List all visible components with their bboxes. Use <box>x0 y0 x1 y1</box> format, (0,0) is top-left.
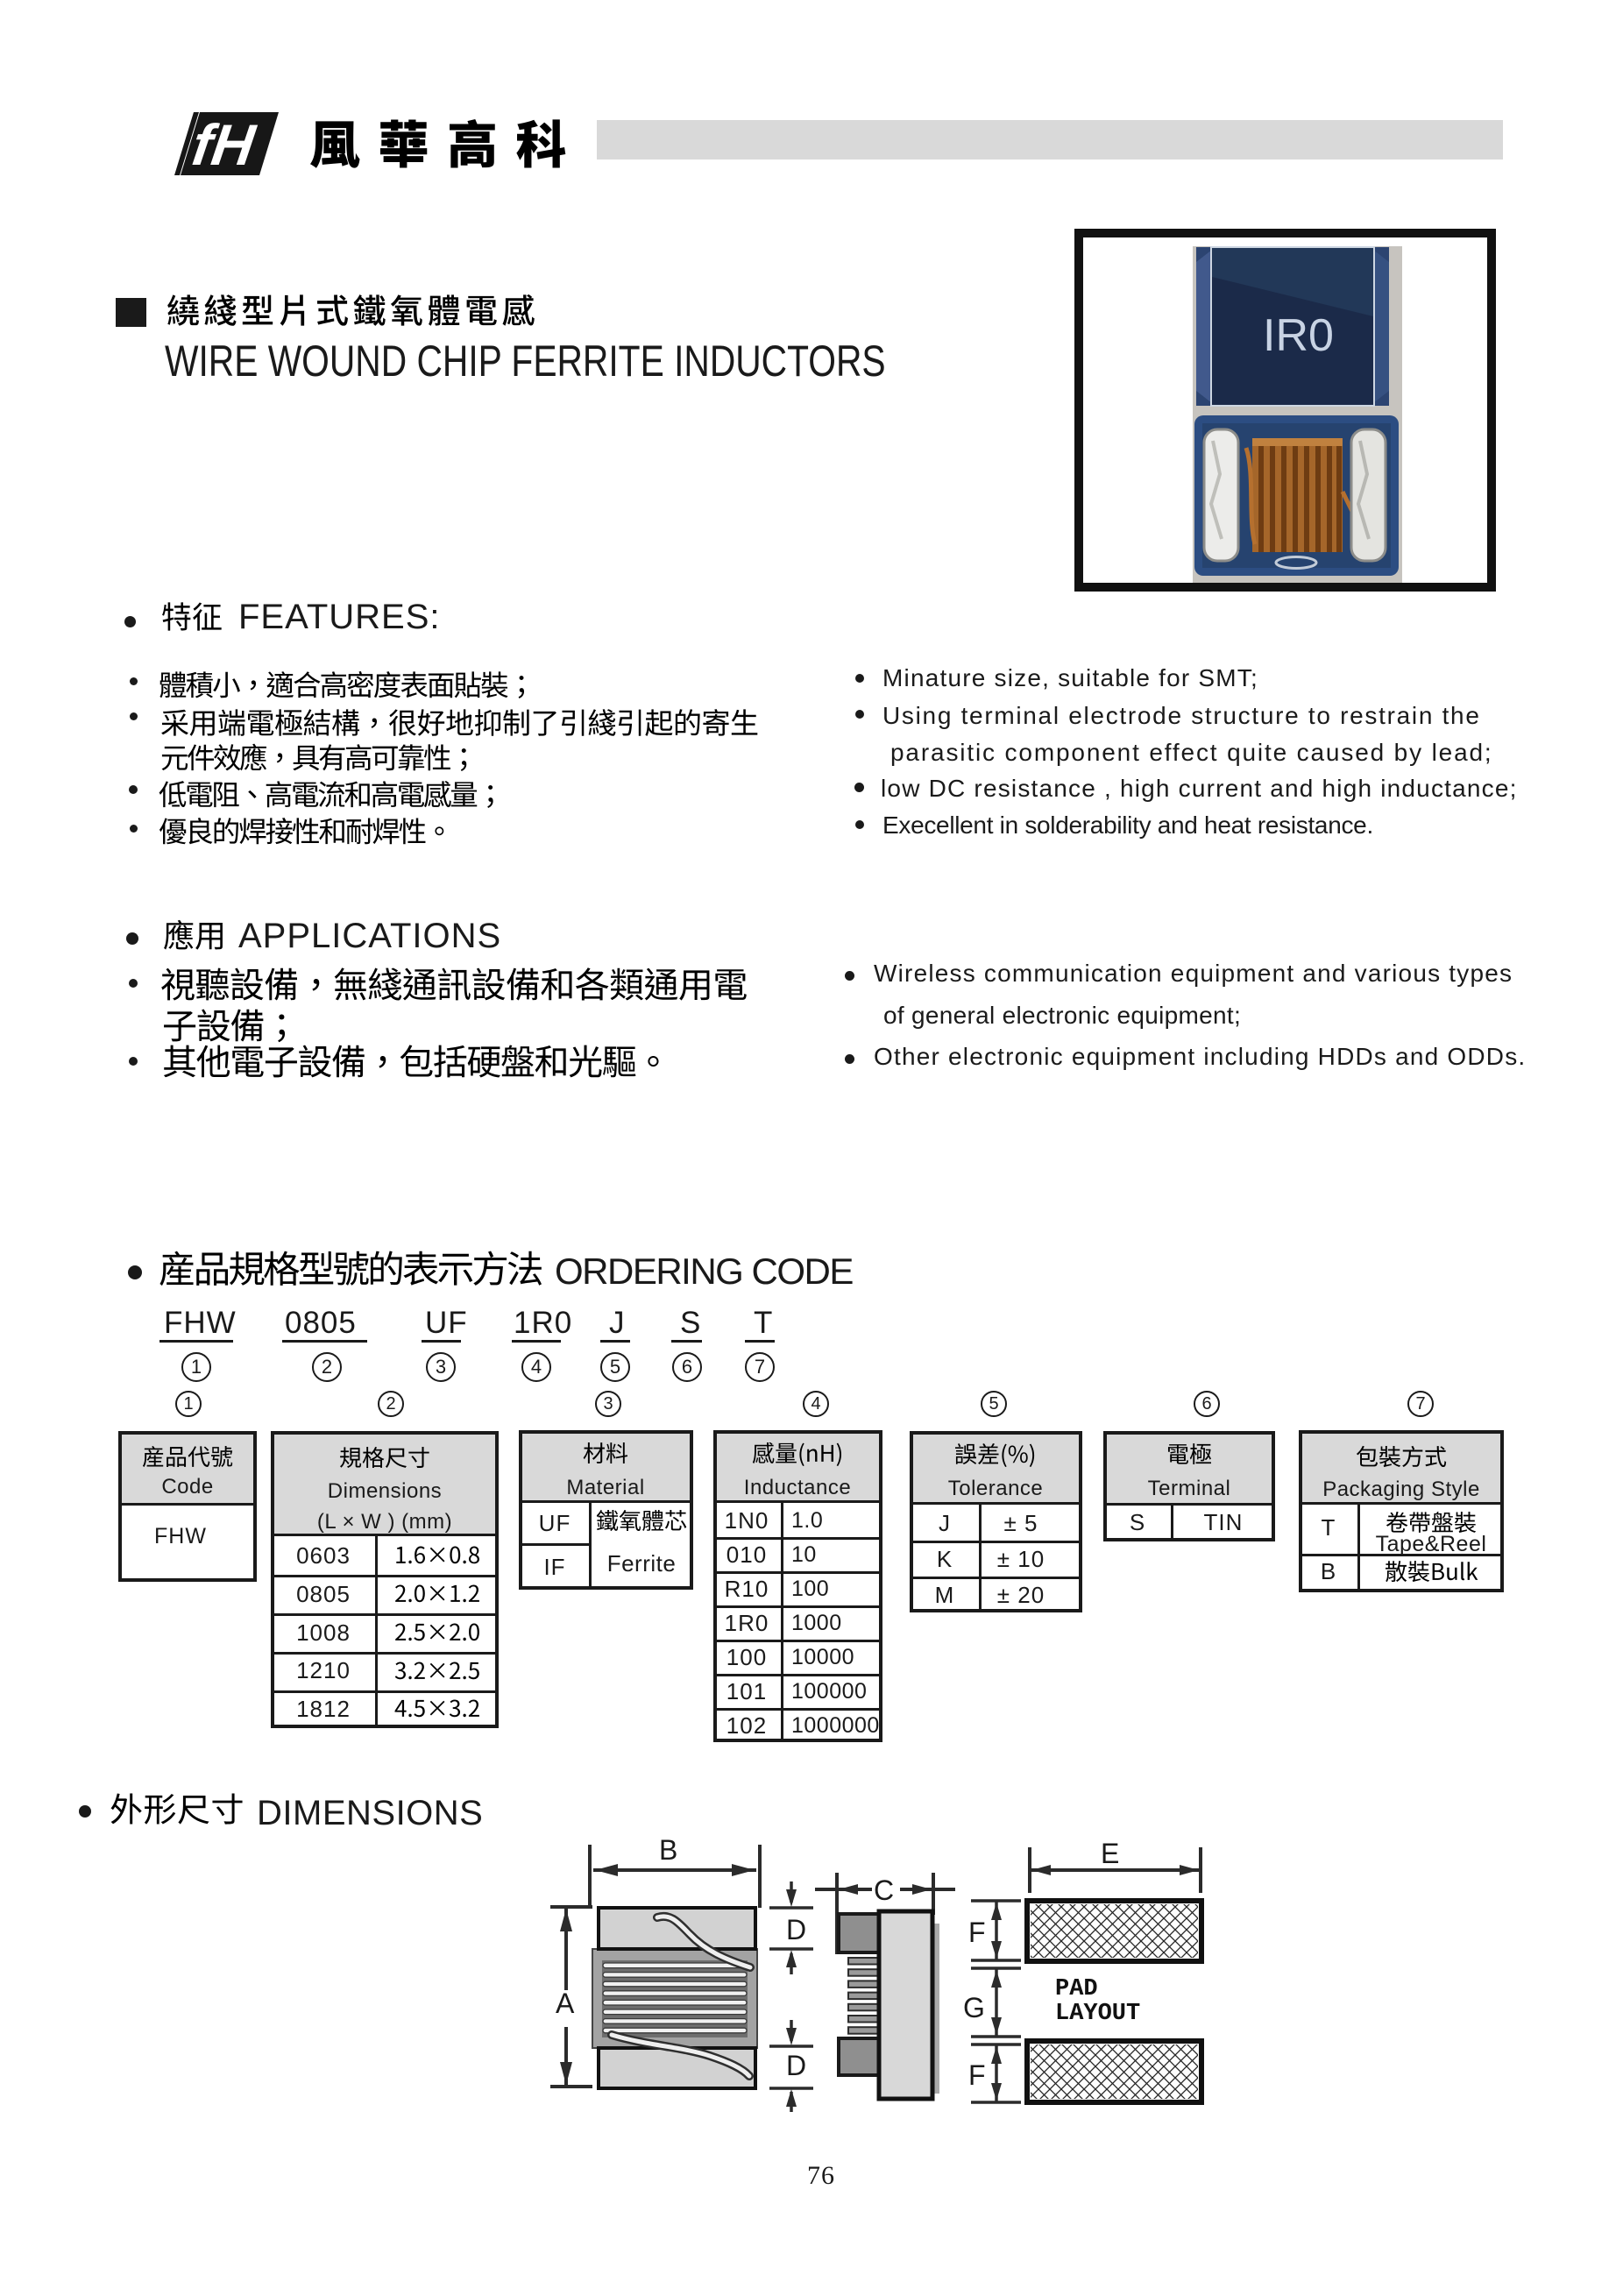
svg-text:A: A <box>556 1988 575 2019</box>
svg-text:IR0: IR0 <box>1263 310 1334 361</box>
svg-text:F: F <box>968 1917 986 1948</box>
svg-text:F: F <box>968 2059 986 2091</box>
svg-text:D: D <box>786 1914 806 1945</box>
svg-text:fH: fH <box>188 113 260 178</box>
svg-text:B: B <box>659 1834 677 1866</box>
svg-text:E: E <box>1101 1838 1119 1869</box>
svg-text:C: C <box>874 1874 894 1906</box>
svg-text:G: G <box>963 1992 985 2023</box>
svg-text:PAD: PAD <box>1055 1976 1098 2002</box>
svg-text:D: D <box>786 2050 806 2081</box>
svg-text:LAYOUT: LAYOUT <box>1055 2001 1140 2027</box>
